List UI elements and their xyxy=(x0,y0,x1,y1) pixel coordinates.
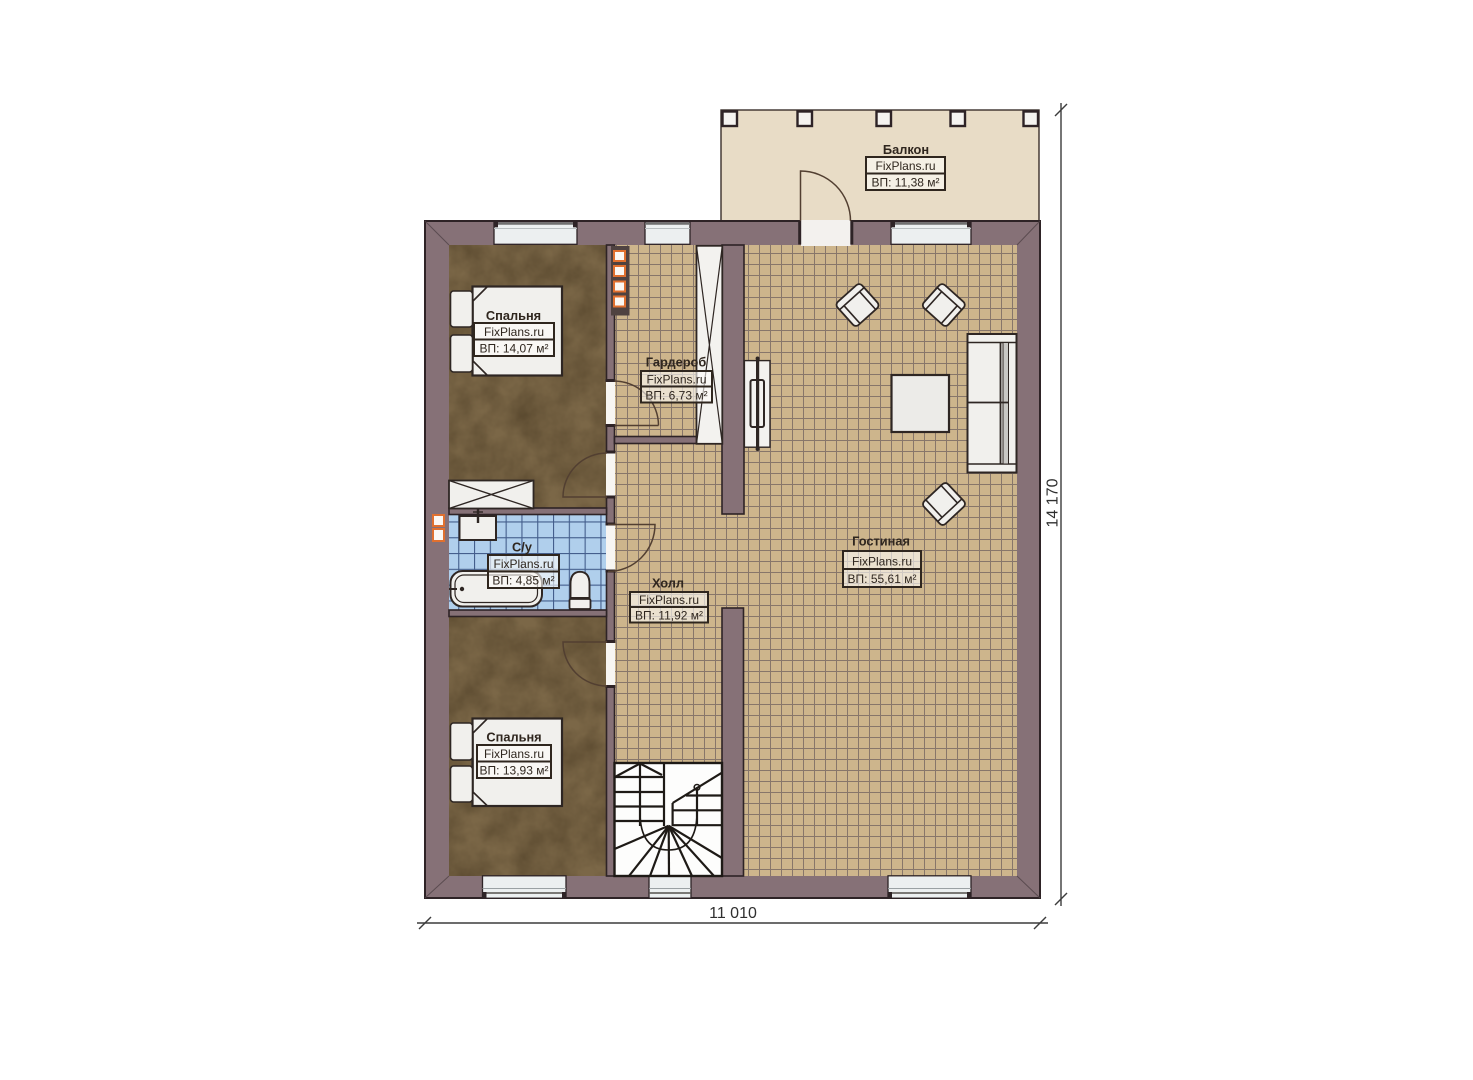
svg-text:FixPlans.ru: FixPlans.ru xyxy=(484,325,544,339)
svg-text:14 170: 14 170 xyxy=(1045,478,1062,527)
svg-text:FixPlans.ru: FixPlans.ru xyxy=(646,373,706,387)
svg-text:ВП: 55,61 м²: ВП: 55,61 м² xyxy=(848,572,917,586)
svg-text:Гардероб: Гардероб xyxy=(646,355,707,370)
svg-text:Холл: Холл xyxy=(652,576,684,591)
svg-text:Балкон: Балкон xyxy=(883,142,929,157)
svg-text:FixPlans.ru: FixPlans.ru xyxy=(493,557,553,571)
svg-text:ВП: 14,07 м²: ВП: 14,07 м² xyxy=(480,342,549,356)
svg-text:ВП: 11,38 м²: ВП: 11,38 м² xyxy=(871,176,939,190)
svg-text:11 010: 11 010 xyxy=(709,905,757,922)
svg-text:ВП: 13,93 м²: ВП: 13,93 м² xyxy=(480,764,549,778)
svg-text:ВП: 6,73 м²: ВП: 6,73 м² xyxy=(645,389,707,403)
svg-text:Гостиная: Гостиная xyxy=(852,534,910,549)
svg-text:FixPlans.ru: FixPlans.ru xyxy=(639,593,699,607)
svg-text:ВП: 4,85 м²: ВП: 4,85 м² xyxy=(492,574,554,588)
svg-text:ВП: 11,92 м²: ВП: 11,92 м² xyxy=(635,609,703,623)
svg-text:FixPlans.ru: FixPlans.ru xyxy=(484,747,544,761)
svg-text:Спальня: Спальня xyxy=(486,730,541,745)
svg-text:Спальня: Спальня xyxy=(486,308,541,323)
svg-text:FixPlans.ru: FixPlans.ru xyxy=(852,555,912,569)
svg-text:С/у: С/у xyxy=(512,540,533,555)
svg-text:FixPlans.ru: FixPlans.ru xyxy=(875,159,935,173)
